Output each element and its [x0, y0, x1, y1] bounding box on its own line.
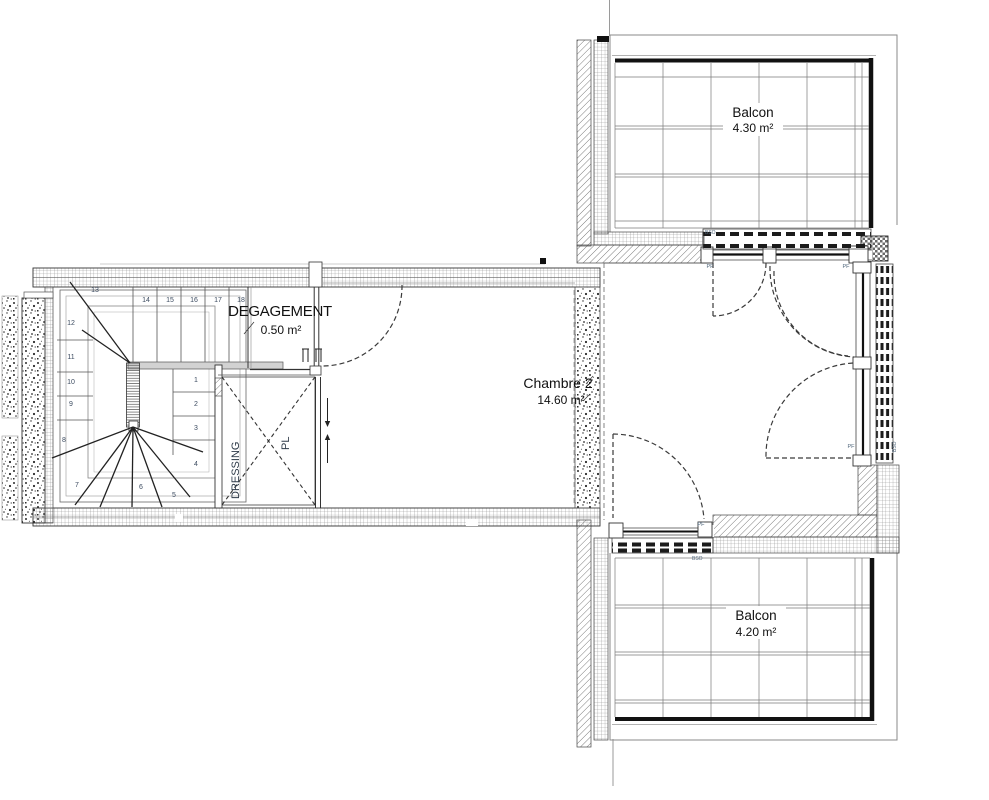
shutter-label-bso: BSO — [705, 230, 716, 236]
paper-background — [0, 0, 989, 800]
wall-grid-band — [877, 465, 899, 553]
window-label-pf: PF — [706, 264, 714, 270]
neighbor-wall-stipple — [2, 436, 18, 520]
left-wall-grid — [45, 298, 53, 523]
stair-step-number: 9 — [69, 401, 73, 408]
bso-band-bottom — [612, 538, 713, 553]
stair-step-number: 12 — [67, 320, 75, 327]
stair-step-number: 10 — [67, 379, 75, 386]
stair-step-number: 3 — [194, 425, 198, 432]
wall-hatch-band — [577, 520, 591, 747]
wall-grid-band — [594, 232, 704, 245]
stair-step-number: 13 — [91, 287, 99, 294]
stair-step-number: 2 — [194, 401, 198, 408]
window-label-pf: PF — [697, 522, 705, 528]
room-label-placard: PL — [280, 437, 292, 450]
facade-partition — [574, 263, 604, 520]
wall-hatch-band — [577, 245, 708, 263]
window-label-pf: PF — [842, 264, 850, 270]
stair-step-number: 4 — [194, 461, 198, 468]
room-area-degagement: 0.50 m² — [261, 323, 302, 337]
stair-step-number: 8 — [62, 437, 66, 444]
wall-grid-band — [713, 537, 899, 553]
left-wall-stipple — [22, 298, 45, 523]
stair-step-number: 14 — [142, 297, 150, 304]
wall-notch — [175, 514, 183, 522]
stair-step-number: 15 — [166, 297, 174, 304]
shutter-label-bso: BSO — [892, 441, 898, 452]
wall-grid-band — [594, 40, 608, 234]
wall-hatch-band — [858, 465, 877, 515]
wall-hatch-band — [577, 40, 591, 246]
wall-grid-band — [594, 538, 608, 740]
floor-plan: Balcon 4.30 m² Balcon 4.20 m² — [0, 0, 989, 800]
room-label-dressing: DRESSING — [230, 442, 242, 499]
stair-step-number: 7 — [75, 482, 79, 489]
door-jamb — [310, 366, 321, 375]
wall-cap — [24, 292, 53, 298]
bso-band-right — [876, 264, 893, 463]
stair-step-number: 17 — [214, 297, 222, 304]
room-area-balcon-top: 4.30 m² — [733, 121, 774, 135]
wall-notch — [466, 519, 478, 526]
shutter-label-bso: BSO — [692, 556, 703, 562]
window-label-pf: PF — [847, 444, 855, 450]
stair-step-number: 1 — [194, 377, 198, 384]
room-area-balcon-bottom: 4.20 m² — [736, 625, 777, 639]
level-mark — [597, 36, 609, 42]
wall-hatch-band — [713, 515, 877, 537]
stair-spine — [127, 363, 140, 427]
room-label-balcon-top: Balcon — [732, 105, 773, 120]
floor-plan-drawing: Balcon 4.30 m² Balcon 4.20 m² — [0, 0, 989, 800]
stair-step-number: 5 — [172, 492, 176, 499]
stair-landing-edge — [128, 362, 283, 369]
stair-step-number: 11 — [67, 354, 74, 361]
room-label-chambre2: Chambre 2 — [523, 375, 592, 391]
room-label-degagement: DEGAGEMENT — [228, 303, 332, 320]
stair-step-number: 6 — [139, 484, 143, 491]
neighbor-wall-stipple — [2, 296, 18, 418]
room-area-chambre2: 14.60 m² — [537, 393, 584, 407]
bso-band-top — [703, 229, 871, 249]
stair-step-number: 16 — [190, 297, 198, 304]
room-label-balcon-bottom: Balcon — [735, 608, 776, 623]
window-right — [853, 262, 872, 466]
wall-joint-mark — [540, 258, 546, 264]
door-jamb — [309, 262, 322, 287]
